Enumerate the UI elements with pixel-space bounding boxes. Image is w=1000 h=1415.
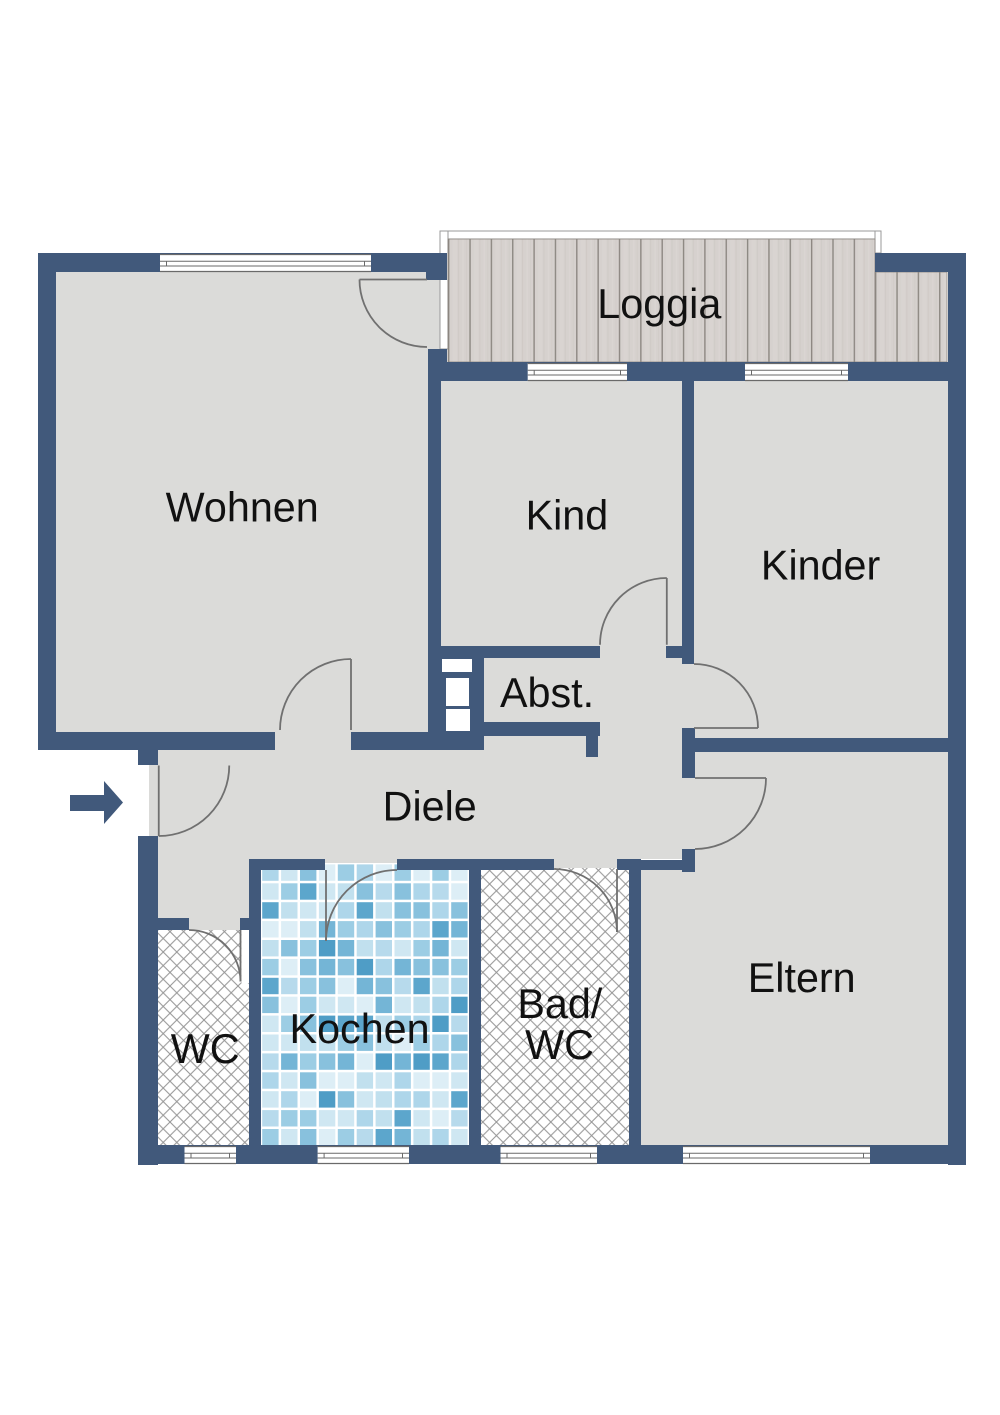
svg-text:Kochen: Kochen	[290, 1006, 430, 1052]
svg-text:Kind: Kind	[526, 493, 609, 539]
svg-text:WC: WC	[525, 1022, 594, 1068]
svg-text:WC: WC	[171, 1026, 240, 1072]
svg-text:Bad/: Bad/	[517, 981, 602, 1027]
svg-text:Loggia: Loggia	[597, 281, 721, 327]
svg-text:Diele: Diele	[383, 783, 477, 829]
svg-text:Wohnen: Wohnen	[166, 484, 319, 530]
svg-text:Abst.: Abst.	[500, 670, 594, 716]
svg-text:Eltern: Eltern	[748, 955, 856, 1001]
svg-text:Kinder: Kinder	[761, 543, 881, 589]
